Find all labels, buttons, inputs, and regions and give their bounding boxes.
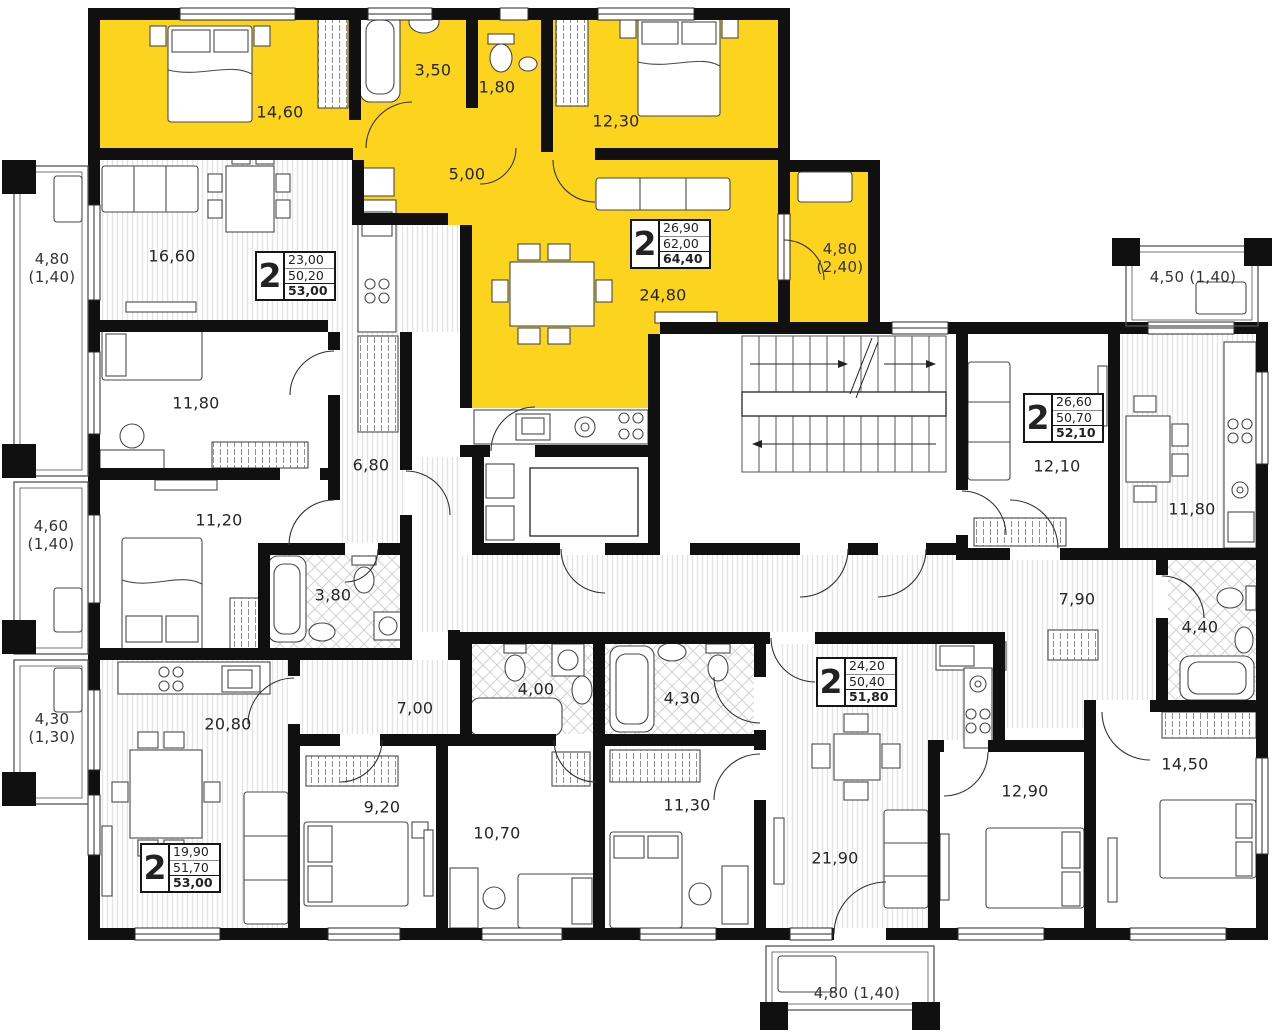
sofa [244,792,288,924]
desk [450,868,478,928]
sink [572,676,592,704]
balcony-area-label: (1,30) [29,728,76,746]
balcony-area-label: 4,80 [35,250,70,268]
sink [1235,627,1253,653]
apartment-spec-yellow: 2 26,90 62,00 64,40 [630,219,711,269]
floor-area: 62,00 [660,236,709,252]
bathtub [610,646,654,732]
room-area-label: 3,50 [415,61,452,80]
rooms-count: 2 [1025,395,1053,441]
room-area-label: 16,60 [148,247,195,266]
balcony-area-label: 4,80 [823,240,858,258]
total-area: 53,00 [170,875,219,891]
armchair [54,176,82,222]
sofa [596,178,730,210]
floor-area: 50,20 [285,268,334,284]
desk [100,450,164,470]
toilet [490,44,512,72]
room-area-label: 7,00 [397,699,434,718]
tv-stand [424,830,433,896]
apartment-spec-right: 2 26,60 50,70 52,10 [1023,393,1104,443]
armchair [54,588,82,632]
apartment-spec-bottom-left: 2 19,90 51,70 53,00 [140,843,221,893]
wardrobe [306,756,398,786]
room-area-label: 11,80 [1168,500,1215,519]
armchair [798,172,852,202]
room-area-label: 21,90 [811,849,858,868]
room-area-label: 11,20 [195,511,242,530]
total-area: 52,10 [1053,425,1102,441]
floor-area: 50,70 [1053,410,1102,426]
balcony-area-label: (1,40) [29,268,76,286]
apartment-spec-left: 2 23,00 50,20 53,00 [255,251,336,301]
tv-stand [774,818,784,884]
tv-stand [940,834,949,900]
tv-stand [102,826,112,896]
room-area-label: 4,30 [664,689,701,708]
wardrobe [230,598,262,652]
floor-plan: 14,60 3,50 1,80 12,30 5,00 24,80 4,80 (2… [0,0,1280,1032]
room-area-label: 11,30 [663,796,710,815]
living-area: 24,20 [846,659,895,674]
toilet [708,655,728,681]
wardrobe [318,18,348,108]
living-area: 19,90 [170,845,219,860]
floor-area: 51,70 [170,860,219,876]
dining-table [510,262,594,326]
tv-stand [155,480,217,490]
dining-table [1126,416,1170,482]
wardrobe [1162,712,1256,738]
balcony-area-label: (1,40) [28,535,75,553]
wardrobe [974,518,1066,546]
balcony-area-label: (2,40) [817,258,864,276]
sofa [968,362,1010,480]
room-area-label: 14,50 [1161,755,1208,774]
wardrobe [212,442,308,468]
room-area-label: 12,30 [592,112,639,131]
total-area: 64,40 [660,251,709,267]
tv-stand [126,302,196,312]
sink [309,623,335,641]
bathtub [1180,656,1254,700]
fridge [362,168,394,196]
balcony-area-label: 4,80 (1,40) [814,984,901,1002]
living-area: 26,90 [660,221,709,236]
room-area-label: 9,20 [364,798,401,817]
room-area-label: 10,70 [473,824,520,843]
room-area-label: 12,90 [1001,782,1048,801]
balcony-area-label: 4,60 [34,517,69,535]
dining-table [226,166,274,232]
chair [120,424,144,448]
rooms-count: 2 [818,659,846,705]
room-area-label: 3,80 [315,586,352,605]
sink [658,643,686,661]
rooms-count: 2 [632,221,660,267]
room-area-label: 4,40 [1182,618,1219,637]
wardrobe [556,18,588,106]
room-area-label: 14,60 [256,103,303,122]
room-area-label: 11,80 [172,394,219,413]
bathtub [470,698,562,736]
desk [722,866,748,924]
sink [519,57,537,71]
armchair [54,668,82,712]
chair [483,887,505,909]
wardrobe [610,750,700,782]
wardrobe [1048,630,1098,660]
floor-area: 50,40 [846,674,895,690]
room-area-label: 24,80 [639,286,686,305]
table [834,734,880,780]
room-area-label: 7,90 [1059,590,1096,609]
sofa [102,166,198,212]
chair [689,883,711,905]
tv-stand [1108,838,1117,902]
total-area: 53,00 [285,283,334,299]
armchair [1196,282,1246,314]
rooms-count: 2 [257,253,285,299]
toilet [1217,588,1243,608]
wardrobe [358,336,398,432]
rooms-count: 2 [142,845,170,891]
living-area: 23,00 [285,253,334,268]
room-area-label: 20,80 [204,715,251,734]
toilet [505,655,525,681]
sofa [884,810,928,908]
dining-table [130,750,202,838]
balcony-area-label: 4,50 (1,40) [1150,268,1237,286]
room-area-label: 12,10 [1033,457,1080,476]
apartment-spec-bottom-mid: 2 24,20 50,40 51,80 [816,657,897,707]
room-area-label: 1,80 [479,78,516,97]
living-area: 26,60 [1053,395,1102,410]
room-area-label: 4,00 [518,680,555,699]
total-area: 51,80 [846,689,895,705]
room-area-label: 5,00 [449,165,486,184]
balcony-area-label: 4,30 [35,710,70,728]
tv-stand [655,312,717,323]
room-area-label: 6,80 [353,456,390,475]
